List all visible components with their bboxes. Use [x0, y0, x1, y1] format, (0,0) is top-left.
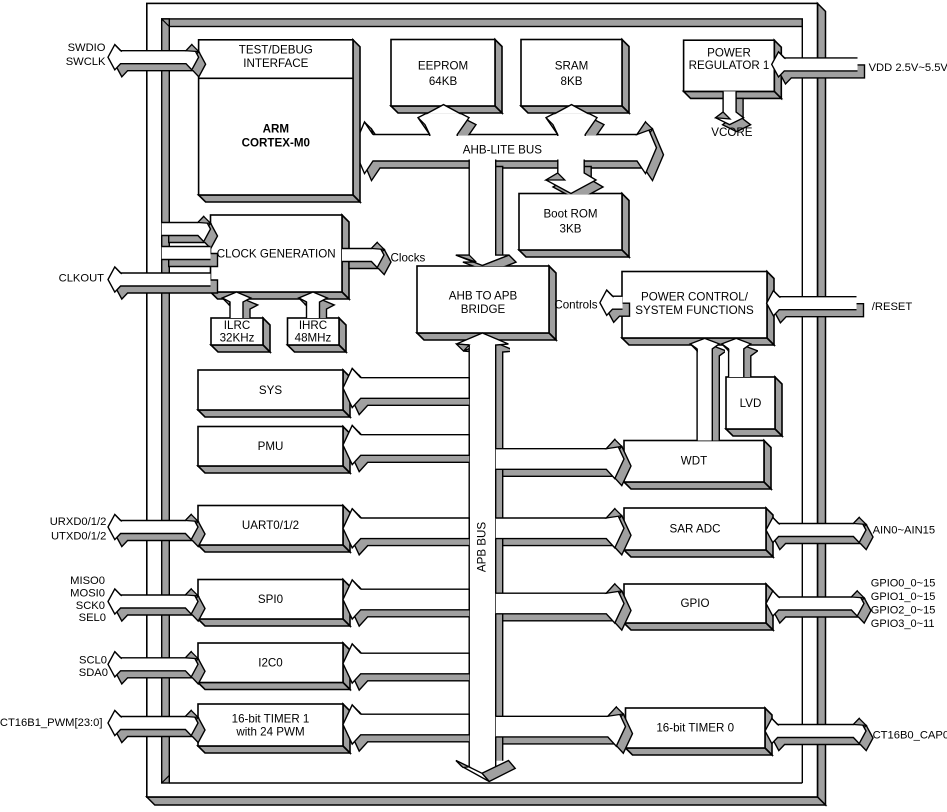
svg-text:SDA0: SDA0	[79, 667, 108, 679]
svg-text:SRAM: SRAM	[555, 60, 589, 73]
svg-text:8KB: 8KB	[561, 75, 583, 88]
svg-text:CLOCK GENERATION: CLOCK GENERATION	[217, 248, 336, 261]
svg-text:MISO0: MISO0	[70, 575, 105, 587]
svg-text:Controls: Controls	[554, 299, 597, 312]
svg-text:16-bit TIMER 0: 16-bit TIMER 0	[656, 722, 734, 735]
svg-text:MOSI0: MOSI0	[70, 587, 105, 599]
svg-text:SAR ADC: SAR ADC	[670, 523, 721, 536]
svg-text:3KB: 3KB	[560, 223, 582, 236]
svg-text:/RESET: /RESET	[872, 301, 913, 313]
svg-text:URXD0/1/2: URXD0/1/2	[50, 516, 107, 528]
svg-text:Boot ROM: Boot ROM	[543, 208, 597, 221]
svg-text:CORTEX-M0: CORTEX-M0	[242, 137, 310, 150]
svg-text:Clocks: Clocks	[391, 251, 426, 264]
svg-text:POWER: POWER	[707, 47, 751, 60]
svg-text:POWER CONTROL/: POWER CONTROL/	[641, 291, 749, 304]
svg-text:GPIO3_0~11: GPIO3_0~11	[871, 618, 935, 630]
svg-text:ILRC: ILRC	[224, 319, 250, 332]
svg-text:TEST/DEBUG: TEST/DEBUG	[239, 44, 313, 57]
svg-text:CLKOUT: CLKOUT	[59, 273, 105, 285]
svg-text:ARM: ARM	[263, 123, 289, 136]
svg-text:VCORE: VCORE	[711, 126, 752, 139]
svg-text:16-bit TIMER 1: 16-bit TIMER 1	[232, 712, 310, 725]
svg-text:WDT: WDT	[681, 455, 707, 468]
svg-text:UART0/1/2: UART0/1/2	[242, 519, 299, 532]
svg-text:AIN0~AIN15: AIN0~AIN15	[873, 524, 936, 536]
svg-text:VDD 2.5V~5.5V: VDD 2.5V~5.5V	[869, 62, 947, 74]
svg-text:GPIO1_0~15: GPIO1_0~15	[871, 591, 936, 603]
svg-text:SYS: SYS	[259, 384, 282, 397]
svg-text:SYSTEM FUNCTIONS: SYSTEM FUNCTIONS	[635, 304, 754, 317]
svg-text:SWCLK: SWCLK	[66, 56, 106, 68]
svg-text:GPIO0_0~15: GPIO0_0~15	[871, 578, 936, 590]
svg-text:AHB TO APB: AHB TO APB	[449, 290, 518, 303]
svg-text:48MHz: 48MHz	[295, 332, 332, 345]
svg-text:GPIO2_0~15: GPIO2_0~15	[871, 605, 936, 617]
svg-text:PMU: PMU	[258, 440, 284, 453]
svg-text:SCK0: SCK0	[76, 600, 105, 612]
svg-text:SPI0: SPI0	[258, 593, 283, 606]
svg-text:I2C0: I2C0	[258, 657, 283, 670]
svg-text:64KB: 64KB	[429, 75, 458, 88]
svg-text:CT16B1_PWM[23:0]: CT16B1_PWM[23:0]	[0, 717, 103, 729]
svg-text:BRIDGE: BRIDGE	[461, 303, 506, 316]
svg-text:EEPROM: EEPROM	[418, 60, 468, 73]
svg-text:AHB-LITE BUS: AHB-LITE BUS	[463, 144, 543, 157]
svg-text:SEL0: SEL0	[79, 612, 106, 624]
svg-text:SWDIO: SWDIO	[68, 42, 106, 54]
svg-text:IHRC: IHRC	[299, 319, 327, 332]
svg-text:with 24 PWM: with 24 PWM	[235, 726, 304, 739]
svg-text:INTERFACE: INTERFACE	[243, 57, 308, 70]
svg-text:REGULATOR 1: REGULATOR 1	[689, 59, 770, 72]
svg-text:GPIO: GPIO	[681, 597, 710, 610]
svg-text:UTXD0/1/2: UTXD0/1/2	[51, 530, 106, 542]
svg-text:32KHz: 32KHz	[220, 332, 255, 345]
svg-text:APB BUS: APB BUS	[476, 522, 489, 573]
svg-text:CT16B0_CAP0: CT16B0_CAP0	[873, 729, 947, 741]
svg-text:LVD: LVD	[740, 397, 762, 410]
svg-text:SCL0: SCL0	[79, 655, 107, 667]
